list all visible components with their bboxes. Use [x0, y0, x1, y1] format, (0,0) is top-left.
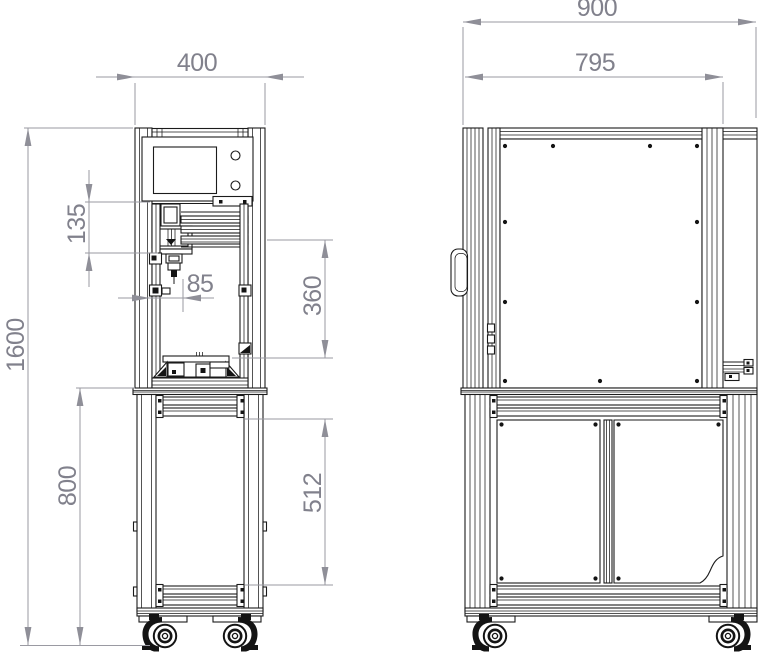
- gantry-rails: [181, 212, 248, 247]
- side-stand-right-post: [727, 395, 757, 613]
- dim-head-offset-value: 135: [63, 204, 91, 244]
- side-upper-frame: [451, 128, 757, 392]
- dimension-enclosure-depth: 795: [465, 49, 723, 124]
- technical-drawing: 400 1600 135 85 360 800: [0, 0, 763, 658]
- dimension-front-width: 400: [96, 49, 304, 125]
- front-view: [133, 128, 267, 652]
- dim-overall-height-value: 1600: [2, 318, 30, 372]
- side-bottom-beam: [465, 608, 757, 616]
- dim-stand-height-value: 800: [54, 466, 82, 506]
- dim-front-width-value: 400: [177, 49, 217, 77]
- sensor-block: [150, 285, 171, 296]
- stand-crossbar-bottom: [156, 585, 244, 607]
- side-stand-left-post: [465, 395, 490, 613]
- side-view: [451, 128, 757, 652]
- dimension-stand-height: 800: [54, 388, 135, 645]
- dim-nozzle-offset-value: 85: [187, 270, 214, 298]
- stand-right-post: [244, 395, 263, 613]
- control-panel: [142, 137, 253, 206]
- side-crossbar-bottom: [490, 585, 727, 607]
- side-stand-top-plate: [461, 388, 757, 395]
- side-rear-post: [702, 128, 723, 390]
- side-stand: [461, 388, 757, 652]
- panel-button-top: [231, 151, 240, 160]
- panel-strut: [604, 420, 612, 583]
- front-stand: [133, 388, 267, 652]
- sensor-block: [239, 285, 251, 296]
- door-hinge: [488, 324, 495, 354]
- side-crossbar-top: [490, 396, 727, 418]
- door-handle: [451, 249, 468, 296]
- dim-overall-depth-value: 900: [577, 0, 617, 22]
- work-table: [152, 352, 248, 388]
- stand-left-post: [137, 395, 156, 613]
- stand-crossbar-top: [156, 396, 244, 418]
- stand-top-plate: [133, 388, 267, 395]
- dim-work-area-height-value: 360: [299, 276, 327, 316]
- side-panel: [500, 139, 702, 388]
- stand-panel-left: [497, 420, 600, 583]
- dim-stand-opening-height-value: 512: [299, 473, 327, 513]
- dim-enclosure-depth-value: 795: [575, 49, 615, 77]
- stand-panel-right: [614, 420, 723, 583]
- panel-button-bottom: [231, 181, 240, 190]
- sensor-block: [150, 253, 162, 264]
- hmi-screen: [154, 147, 217, 194]
- side-table-bracket: [723, 360, 753, 381]
- nozzle: [166, 254, 182, 284]
- sensor-block: [239, 343, 251, 354]
